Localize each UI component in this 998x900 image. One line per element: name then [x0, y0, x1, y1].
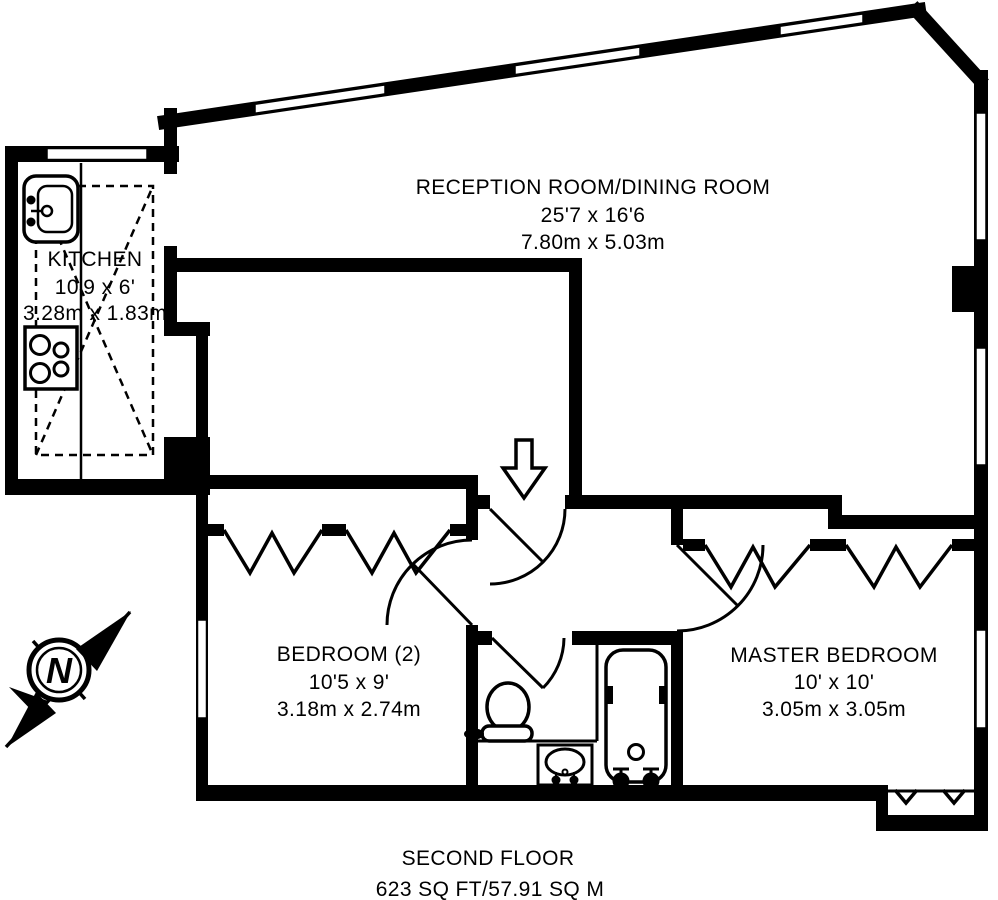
wardrobe-zigzag [846, 545, 952, 587]
wardrobe-stub [450, 524, 478, 536]
wall-bathroom-top-right [572, 631, 683, 645]
reception-label: RECEPTION ROOM/DINING ROOM 25'7 x 16'6 7… [416, 176, 771, 254]
floorplan-page: N RECEPTION ROOM/DINING ROOM 25'7 x 16'6… [0, 0, 998, 900]
wall-master-door-stub [671, 509, 683, 545]
bathtub-outline [606, 650, 666, 782]
sink-icon [24, 176, 78, 242]
wall-hall-top [565, 495, 835, 509]
window-master-right [976, 630, 986, 728]
wall-bottom [196, 785, 888, 801]
wall-bedroom2-top [196, 475, 478, 489]
hob-burner [31, 336, 50, 355]
bathtub-tap [643, 773, 660, 790]
bathtub-drain [629, 745, 644, 760]
basin-tap [552, 776, 561, 785]
wardrobe-stub [322, 524, 346, 536]
wall-corner-chamfer [917, 11, 979, 79]
wall-pillar [952, 266, 976, 312]
footer: SECOND FLOOR 623 SQ FT/57.91 SQ M [376, 847, 605, 900]
room-dim-imperial: 10'5 x 9' [309, 671, 390, 694]
basin-tap [570, 776, 579, 785]
room-dim-imperial: 10'9 x 6' [55, 276, 136, 299]
wardrobe-zigzag [224, 530, 322, 573]
wardrobe-stub [196, 524, 224, 536]
wall-entry-stub [478, 495, 490, 509]
kitchen-label: KITCHEN 10'9 x 6' 3.28m x 1.83m [23, 248, 167, 325]
compass-rose-icon: N [6, 611, 131, 747]
hob-icon [25, 327, 77, 389]
room-dim-imperial: 10' x 10' [794, 671, 875, 694]
toilet-flush [464, 729, 484, 740]
window-right-2 [976, 348, 986, 465]
wall-bottom-step [876, 785, 888, 831]
wardrobe-zigzag [346, 530, 450, 573]
wardrobe-stub [683, 539, 705, 551]
floor-area: 623 SQ FT/57.91 SQ M [376, 878, 605, 900]
entry-door [490, 509, 565, 584]
window-right-1 [976, 113, 986, 240]
room-name: MASTER BEDROOM [730, 644, 937, 667]
wall-bottom-right [888, 815, 988, 831]
hob-burner [31, 364, 50, 383]
wall-bathroom-right [671, 631, 683, 787]
bedroom2-label: BEDROOM (2) 10'5 x 9' 3.18m x 2.74m [277, 643, 421, 721]
wall-bathroom-top-left [466, 631, 492, 645]
bathtub-tap [613, 773, 630, 790]
room-name: RECEPTION ROOM/DINING ROOM [416, 176, 771, 199]
kitchen-boundary-walls [164, 108, 210, 481]
wall-master-top-right [835, 515, 974, 529]
window-top-3 [780, 14, 863, 35]
room-dim-metric: 3.18m x 2.74m [277, 698, 421, 721]
basin-drain [563, 770, 568, 775]
window-bedroom2-left [198, 620, 207, 718]
floorplan-drawing: N RECEPTION ROOM/DINING ROOM 25'7 x 16'6… [0, 0, 998, 900]
wall-reception-divider-h [177, 258, 582, 272]
door-leaf [492, 638, 543, 688]
entry-arrow-icon [503, 440, 545, 498]
bathroom-door [492, 638, 564, 688]
wall-reception-divider-v [569, 272, 582, 495]
wall-kitchen-block [164, 437, 210, 481]
wall-kitchen-right-upper [164, 108, 177, 174]
compass-north-label: N [46, 650, 73, 691]
wall-kitchen-bottom [5, 479, 210, 495]
wardrobe-stub [952, 539, 974, 551]
door-swing [543, 638, 564, 688]
bathtub-icon [606, 650, 666, 790]
wall-kitchen-lower-vertical [196, 336, 208, 437]
room-name: BEDROOM (2) [277, 643, 421, 666]
wardrobe-zigzag [705, 545, 810, 587]
room-name: KITCHEN [48, 248, 143, 271]
master-label: MASTER BEDROOM 10' x 10' 3.05m x 3.05m [730, 644, 937, 721]
master-wardrobe [683, 539, 974, 587]
room-dim-metric: 7.80m x 5.03m [521, 231, 665, 254]
wall-kitchen-step [164, 322, 210, 336]
hob-burner [54, 343, 68, 357]
room-dim-metric: 3.05m x 3.05m [762, 698, 906, 721]
wardrobes [196, 524, 974, 587]
door-leaf [677, 545, 738, 606]
niche-bottom-right [888, 790, 974, 803]
door-leaf [412, 563, 472, 625]
wall-hall-left-lower [466, 625, 478, 787]
wardrobe-stub [810, 539, 846, 551]
bathtub-side-tap [606, 686, 613, 704]
room-dim-metric: 3.28m x 1.83m [23, 302, 167, 325]
room-dim-imperial: 25'7 x 16'6 [541, 204, 646, 227]
bedroom2-door [387, 540, 472, 625]
bathtub-side-tap [659, 686, 666, 704]
master-door [677, 545, 763, 631]
bathroom-fixtures [464, 645, 666, 790]
sink-tap [27, 218, 36, 227]
hob-burner [54, 362, 68, 376]
toilet-cistern [482, 726, 532, 741]
basin-icon [538, 745, 592, 785]
sink-tap [27, 196, 36, 205]
sink-drain [42, 206, 52, 216]
toilet-bowl [487, 683, 529, 731]
wall-kitchen-left [5, 146, 18, 495]
floor-title: SECOND FLOOR [402, 847, 575, 870]
door-leaf [490, 509, 543, 562]
window-kitchen-top [47, 149, 147, 160]
